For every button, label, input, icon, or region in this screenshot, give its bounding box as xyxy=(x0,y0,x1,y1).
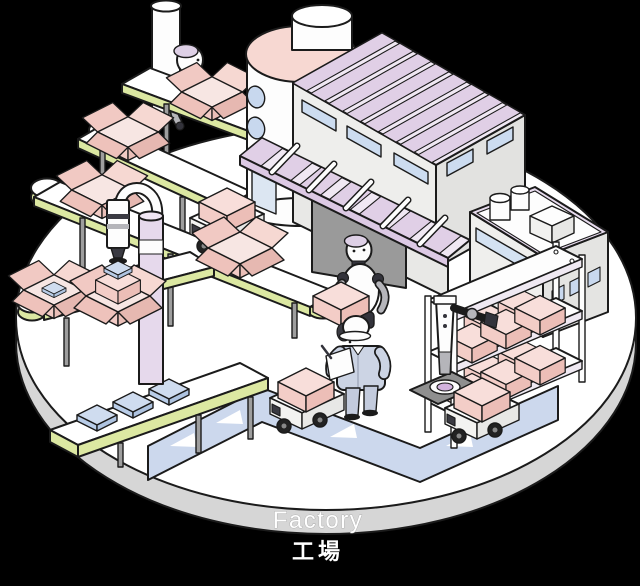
caption: Factory 工場 xyxy=(273,507,364,564)
caption-japanese: 工場 xyxy=(292,539,344,564)
caption-english: Factory xyxy=(273,507,364,534)
factory-illustration: Factory 工場 xyxy=(0,0,640,586)
factory-illustration-card: Factory 工場 xyxy=(0,0,640,586)
